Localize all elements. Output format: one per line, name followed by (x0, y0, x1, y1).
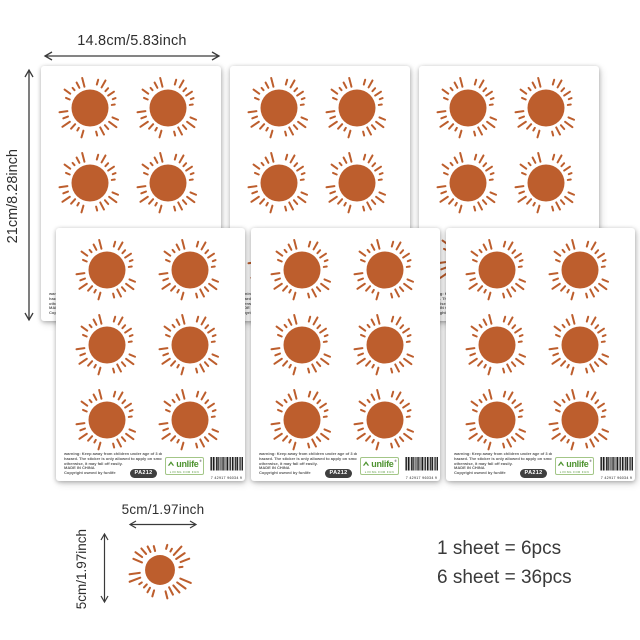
product-code-badge: PA212 (520, 469, 547, 478)
barcode-digits: 7 42917 96034 9 (599, 476, 634, 480)
sun-sticker (352, 312, 418, 378)
sun-sticker (126, 536, 194, 604)
sun-sticker (157, 312, 223, 378)
sun-sticker-grid (261, 232, 426, 457)
sheet-footer: warning: Keep away from children under a… (64, 451, 241, 481)
sun-sticker (547, 237, 613, 303)
sun-sticker (513, 75, 579, 141)
funlife-logo: unlife ® LIVING FOR FUN (555, 457, 594, 475)
barcode: 7 42917 96034 9 (599, 457, 634, 476)
sun-sticker (74, 237, 140, 303)
sticker-height-label-wrap: 5cm/1.97inch (72, 531, 90, 607)
sun-sticker (547, 312, 613, 378)
funlife-logo: unlife ® LIVING FOR FUN (165, 457, 204, 475)
sun-sticker (324, 150, 390, 216)
sun-sticker (157, 387, 223, 453)
sun-sticker (352, 237, 418, 303)
sun-sticker (57, 150, 123, 216)
barcode-bars (209, 457, 244, 471)
pack-info-line-2: 6 sheet = 36pcs (437, 563, 572, 592)
product-image: 14.8cm/5.83inch 21cm/8.28inch warning: K… (0, 0, 640, 640)
sun-sticker (269, 387, 335, 453)
barcode: 7 42917 96034 9 (209, 457, 244, 476)
sun-sticker (547, 387, 613, 453)
roof-icon (362, 460, 370, 468)
roof-icon (557, 460, 565, 468)
single-sun-sticker (126, 536, 194, 604)
sun-sticker (352, 387, 418, 453)
sun-sticker (464, 237, 530, 303)
barcode: 7 42917 96034 9 (404, 457, 439, 476)
brand-text: unlife (176, 459, 198, 469)
sticker-vertical-arrow (99, 532, 110, 604)
product-code-badge: PA212 (325, 469, 352, 478)
sun-sticker (74, 387, 140, 453)
sun-sticker (246, 150, 312, 216)
sun-sticker (57, 75, 123, 141)
brand-tagline: LIVING FOR FUN (556, 470, 593, 474)
sticker-sheet-front-2: warning: Keep away from children under a… (251, 228, 440, 481)
sun-sticker-grid (456, 232, 621, 457)
product-code-badge: PA212 (130, 469, 157, 478)
sticker-horizontal-arrow (128, 519, 198, 530)
sun-sticker (464, 312, 530, 378)
barcode-bars (599, 457, 634, 471)
sun-sticker (513, 150, 579, 216)
sun-sticker (135, 150, 201, 216)
barcode-bars (404, 457, 439, 471)
sun-sticker (135, 75, 201, 141)
barcode-digits: 7 42917 96034 9 (209, 476, 244, 480)
sun-sticker (74, 312, 140, 378)
barcode-digits: 7 42917 96034 9 (404, 476, 439, 480)
sheet-height-label: 21cm/8.28inch (5, 149, 21, 243)
sticker-width-label: 5cm/1.97inch (118, 502, 208, 517)
sun-sticker-grid (66, 232, 231, 457)
brand-tagline: LIVING FOR FUN (361, 470, 398, 474)
vertical-arrow (23, 68, 35, 322)
sheet-height-label-wrap: 21cm/8.28inch (4, 70, 22, 322)
sun-sticker (435, 75, 501, 141)
sheet-width-label: 14.8cm/5.83inch (43, 33, 221, 49)
brand-text: unlife (371, 459, 393, 469)
sheet-footer: warning: Keep away from children under a… (259, 451, 436, 481)
horizontal-arrow (43, 50, 221, 62)
sticker-sheet-front-3: warning: Keep away from children under a… (446, 228, 635, 481)
brand-text: unlife (566, 459, 588, 469)
registered-mark: ® (199, 459, 201, 463)
sun-sticker (269, 237, 335, 303)
sticker-height-label: 5cm/1.97inch (74, 529, 89, 609)
pack-info: 1 sheet = 6pcs 6 sheet = 36pcs (437, 534, 572, 592)
brand-tagline: LIVING FOR FUN (166, 470, 203, 474)
funlife-logo: unlife ® LIVING FOR FUN (360, 457, 399, 475)
sticker-sheet-front-1: warning: Keep away from children under a… (56, 228, 245, 481)
sheet-footer: warning: Keep away from children under a… (454, 451, 631, 481)
sun-sticker (324, 75, 390, 141)
sun-sticker (269, 312, 335, 378)
sun-sticker (435, 150, 501, 216)
roof-icon (167, 460, 175, 468)
registered-mark: ® (394, 459, 396, 463)
sun-sticker (157, 237, 223, 303)
sun-sticker (246, 75, 312, 141)
sun-sticker (464, 387, 530, 453)
registered-mark: ® (589, 459, 591, 463)
pack-info-line-1: 1 sheet = 6pcs (437, 534, 572, 563)
